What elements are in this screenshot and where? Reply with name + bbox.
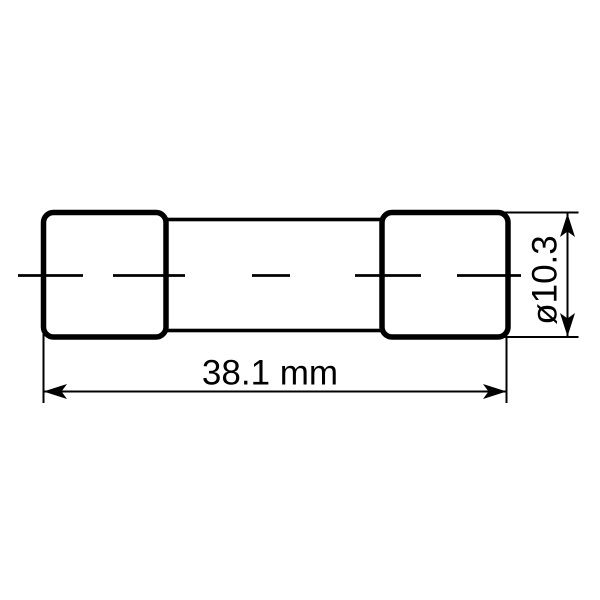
diameter-dimension-label: ø10.3 [526, 235, 565, 325]
drawing-canvas: 38.1 mm ø10.3 [0, 0, 600, 600]
fuse-technical-drawing: 38.1 mm ø10.3 [0, 0, 600, 600]
length-dimension-label: 38.1 mm [202, 354, 338, 393]
